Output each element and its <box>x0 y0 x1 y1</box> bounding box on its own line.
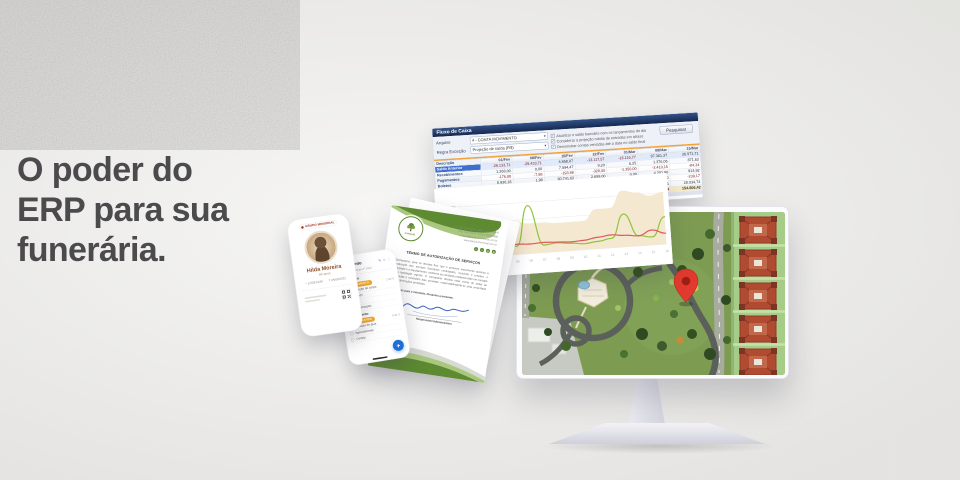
memorial-date: *12/03/1938 <box>305 280 322 285</box>
checkbox-icon[interactable]: ✓ <box>551 134 555 138</box>
social-icon[interactable]: f <box>474 247 479 252</box>
checkbox-icon[interactable]: ✓ <box>551 139 555 143</box>
svg-text:06: 06 <box>529 258 533 262</box>
brand-dot-icon <box>301 226 304 229</box>
mausoleum <box>739 348 777 375</box>
social-icons: ft@in <box>474 247 496 254</box>
svg-text:16: 16 <box>665 249 669 253</box>
svg-text:11: 11 <box>597 254 601 258</box>
memorial-portrait <box>302 229 339 266</box>
mausoleum <box>739 315 777 343</box>
brand-label: GRUPO MEMORIAL <box>305 221 335 228</box>
plus-icon: + <box>396 341 401 349</box>
home-indicator <box>373 356 388 360</box>
checkbox-icon[interactable]: ✓ <box>551 145 555 149</box>
overflow-icon[interactable]: ⋮ <box>387 257 391 261</box>
pond <box>579 281 590 289</box>
field-label-arquivo: Arquivo <box>436 138 468 145</box>
field-label-regra: Regra Exceção <box>436 148 468 155</box>
mausoleum <box>739 282 777 310</box>
search-button[interactable]: Pesquisar <box>659 124 692 134</box>
edit-icon[interactable]: ✎ <box>378 259 381 263</box>
memorial-date: †05/08/2022 <box>328 277 346 282</box>
star-icon[interactable]: ☆ <box>382 258 386 262</box>
memorial-meta-lines <box>304 295 326 303</box>
qr-code-icon[interactable] <box>341 289 352 300</box>
logo-label: PARQUE <box>405 232 416 236</box>
svg-text:15: 15 <box>651 250 655 254</box>
svg-text:14: 14 <box>638 251 642 255</box>
hero-headline: O poder do ERP para sua funerária. <box>17 150 267 270</box>
add-task-button[interactable]: + <box>392 339 405 352</box>
mausoleum <box>739 249 777 277</box>
brand-pill: GRUPO MEMORIAL <box>299 219 337 230</box>
svg-text:07: 07 <box>543 258 547 262</box>
svg-text:13: 13 <box>624 252 628 256</box>
circle-icon <box>350 332 354 336</box>
social-icon[interactable]: in <box>492 250 497 255</box>
svg-text:12: 12 <box>611 253 615 257</box>
mausoleum <box>739 216 777 244</box>
svg-text:09: 09 <box>570 256 574 260</box>
hero-banner: O poder do ERP para sua funerária. Fluxo… <box>0 0 960 480</box>
social-icon[interactable]: t <box>480 248 485 253</box>
circle-icon <box>351 338 355 342</box>
svg-text:08: 08 <box>557 257 561 261</box>
cashflow-options: ✓Atualizar o saldo bancário com os lança… <box>551 126 658 151</box>
svg-text:10: 10 <box>584 255 588 259</box>
social-icon[interactable]: @ <box>486 249 491 254</box>
svg-text:05: 05 <box>516 259 520 263</box>
